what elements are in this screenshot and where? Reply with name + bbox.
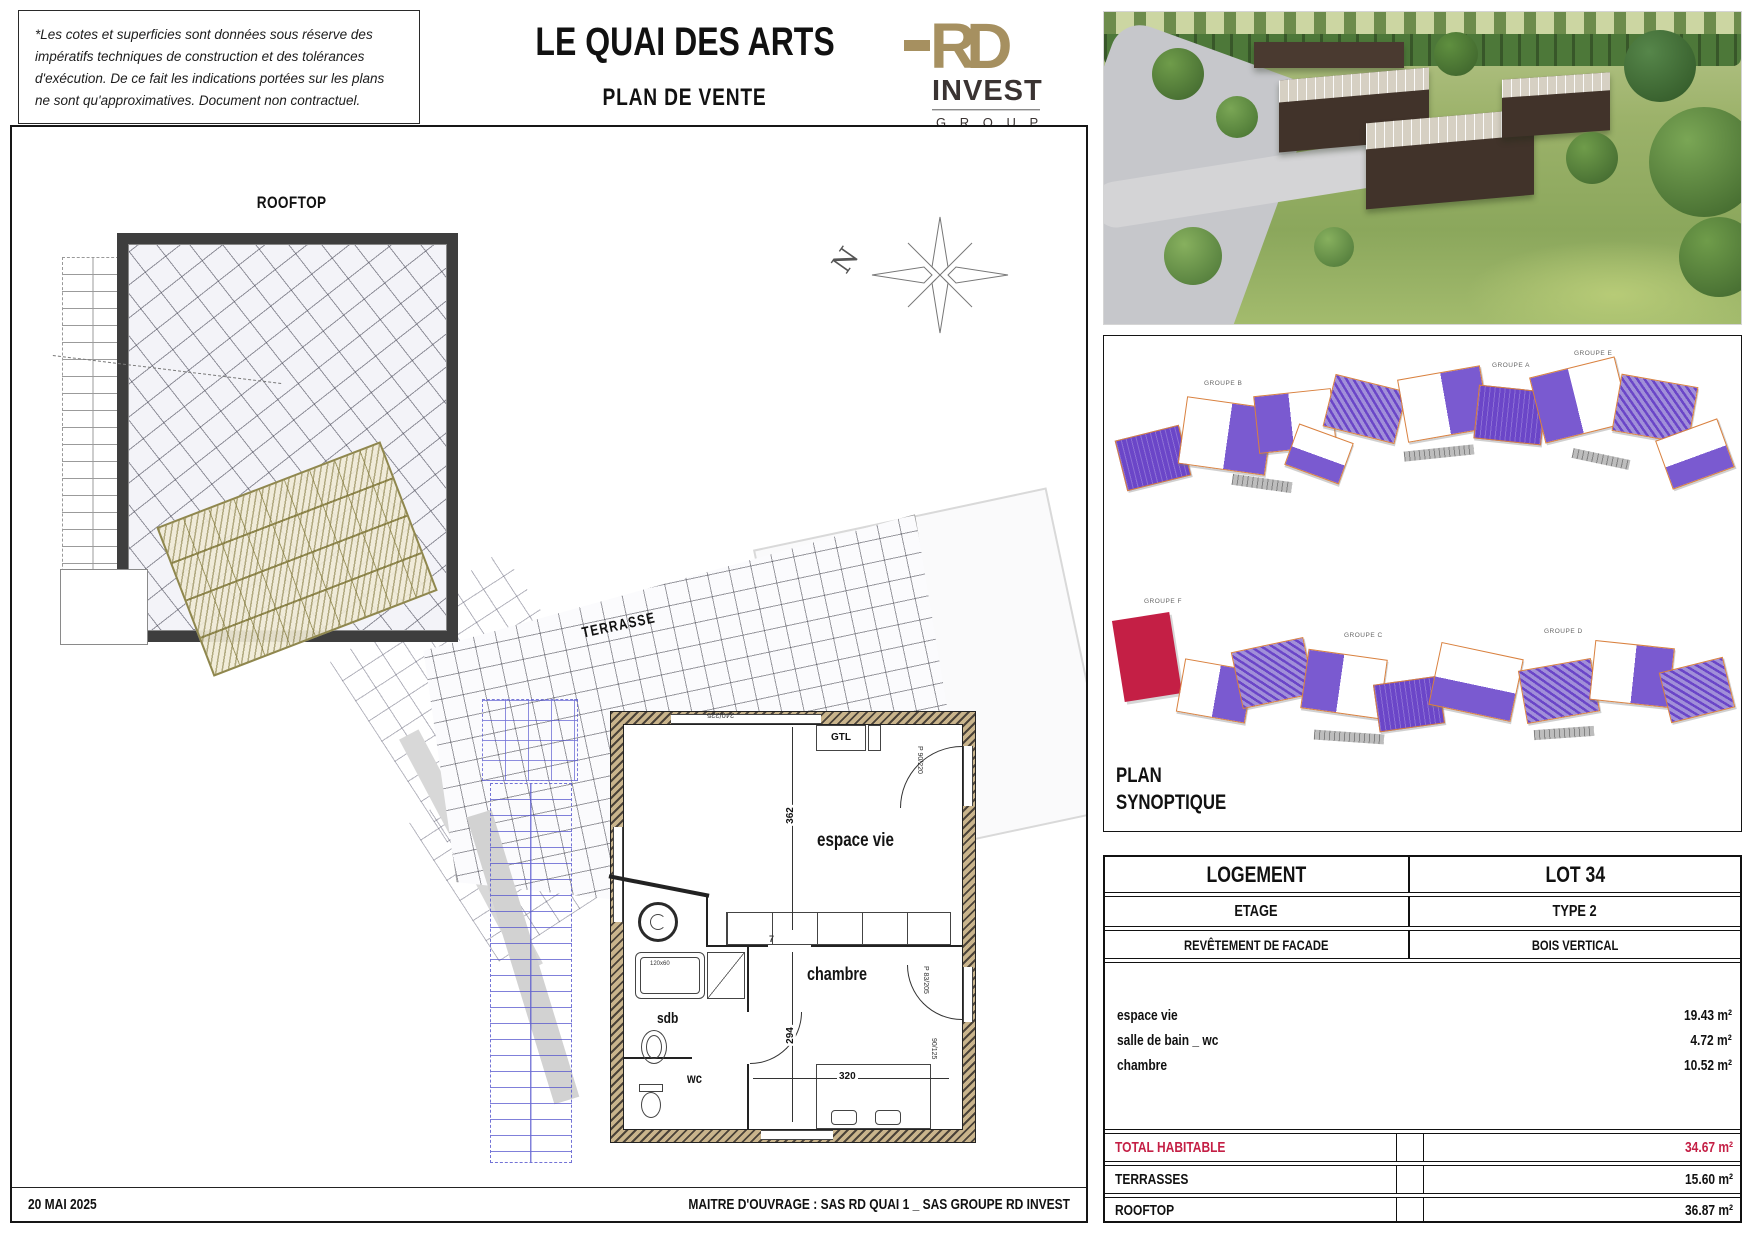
rooftop-plan-label: ROOFTOP (212, 193, 372, 213)
logo-invest-text: INVEST (932, 75, 1043, 107)
room-area: 10.52 m² (1684, 1053, 1732, 1078)
facade-header: REVÊTEMENT DE FACADE (1105, 931, 1410, 958)
tree (1624, 30, 1696, 102)
rooftop-row: ROOFTOP 36.87 m² (1105, 1198, 1740, 1223)
bed (816, 1064, 931, 1129)
north-label: N (826, 242, 865, 279)
tree (1216, 96, 1258, 138)
spacer-cell (1397, 1134, 1424, 1161)
lot-type: TYPE 2 (1410, 903, 1740, 921)
gtl-box: GTL (816, 725, 866, 751)
page-title: LE QUAI DES ARTS (420, 20, 950, 65)
table-row-logement: LOGEMENT LOT 34 (1105, 857, 1740, 892)
synoptic-shadow (1314, 730, 1385, 745)
kitchen-counter (726, 912, 951, 945)
total-habitable-label: TOTAL HABITABLE (1105, 1134, 1397, 1161)
spacer-cell (1397, 1198, 1424, 1223)
project-rendering-photo (1103, 11, 1742, 325)
rooftop-area-value: 36.87 m² (1424, 1198, 1740, 1223)
room-area-row: salle de bain _ wc 4.72 m² (1117, 1028, 1732, 1053)
room-label: salle de bain _ wc (1117, 1028, 1218, 1053)
dim-entry-door: P 90/220 (916, 746, 923, 774)
tree (1566, 132, 1618, 184)
room-area: 19.43 m² (1684, 1003, 1732, 1028)
interior-wall (706, 894, 708, 945)
rooftop-area-label: ROOFTOP (1105, 1198, 1397, 1223)
room-label: chambre (1117, 1053, 1167, 1078)
window-top (671, 714, 821, 724)
interior-wall (747, 1064, 749, 1129)
bathtub-dim: 120x60 (650, 961, 670, 967)
espace-vie-label: espace vie (817, 830, 947, 852)
dim-line-362 (792, 727, 793, 930)
rooftop-exterior-stair (62, 257, 124, 607)
group-label: GROUPE B (1204, 380, 1242, 387)
apartment-unit-plan: GTL 120x60 (611, 712, 975, 1142)
dim-seven: 7 (769, 934, 774, 944)
bathtub: 120x60 (635, 952, 705, 999)
dim-362: 362 (785, 805, 796, 826)
synoptic-plan-panel: GROUPE B GROUPE A GROUPE E GROUPE F GROU… (1103, 335, 1742, 832)
table-row-etage: ETAGE TYPE 2 (1105, 897, 1740, 926)
room-area: 4.72 m² (1691, 1028, 1732, 1053)
total-habitable-value: 34.67 m² (1424, 1134, 1740, 1161)
synoptic-shadow (1404, 444, 1475, 461)
building-back (1254, 42, 1404, 68)
window-bottom (761, 1130, 833, 1140)
rd-invest-logo: RD INVEST G R O U P (900, 6, 1050, 130)
interior-wall (811, 945, 963, 947)
highlighted-lot-34 (1112, 612, 1182, 702)
group-label: GROUPE E (1574, 350, 1612, 357)
lot-spec-table: LOGEMENT LOT 34 ETAGE TYPE 2 REVÊTEMENT … (1103, 855, 1742, 1223)
plan-de-vente-document: *Les cotes et superficies sont données s… (0, 0, 1753, 1240)
sdb-label: sdb (657, 1010, 684, 1027)
chambre-door-opening (963, 967, 973, 1022)
interior-wall (706, 945, 768, 947)
synoptic-unit-block (1518, 658, 1600, 724)
gtl-side-box (868, 725, 881, 751)
toilet (641, 1092, 661, 1118)
large-tree (1649, 107, 1742, 217)
chambre-label: chambre (807, 964, 882, 985)
rooftop-stair-landing (60, 569, 148, 645)
building-3 (1502, 72, 1610, 138)
lot-number: LOT 34 (1410, 862, 1740, 888)
group-label: GROUPE F (1144, 598, 1182, 605)
washbasin (641, 1030, 667, 1064)
room-areas-block: espace vie 19.43 m² salle de bain _ wc 4… (1105, 963, 1740, 1129)
compass-rose-icon (870, 215, 1010, 335)
logo-rd-text: RD (930, 10, 1010, 82)
shower (707, 952, 745, 999)
maitre-ouvrage: MAITRE D'OUVRAGE : SAS RD QUAI 1 _ SAS G… (688, 1196, 1070, 1213)
pillow (831, 1110, 857, 1125)
group-label: GROUPE C (1344, 632, 1383, 639)
synoptic-unit-block (1284, 423, 1354, 484)
synoptic-shadow (1572, 448, 1631, 470)
synoptic-shadow (1534, 726, 1595, 740)
disclaimer-box: *Les cotes et superficies sont données s… (18, 10, 420, 124)
tree (1164, 227, 1222, 285)
tree (1434, 32, 1478, 76)
plan-footer: 20 MAI 2025 MAITRE D'OUVRAGE : SAS RD QU… (12, 1187, 1086, 1221)
tree (1152, 48, 1204, 100)
facade-value: BOIS VERTICAL (1410, 937, 1740, 953)
logement-header: LOGEMENT (1105, 857, 1410, 892)
synoptic-title: PLAN SYNOPTIQUE (1116, 762, 1254, 817)
room-area-row: chambre 10.52 m² (1117, 1053, 1732, 1078)
tree (1314, 227, 1354, 267)
pillow (875, 1110, 901, 1125)
disclaimer-text: *Les cotes et superficies sont données s… (35, 27, 384, 108)
room-label: espace vie (1117, 1003, 1178, 1028)
group-label: GROUPE A (1492, 362, 1530, 369)
table-row-facade: REVÊTEMENT DE FACADE BOIS VERTICAL (1105, 931, 1740, 958)
group-label: GROUPE D (1544, 628, 1583, 635)
plan-date: 20 MAI 2025 (28, 1196, 97, 1213)
main-plan-frame: ROOFTOP N TERRASSE (10, 125, 1088, 1223)
synoptic-shadow (1232, 474, 1293, 493)
stair-upper-grid (482, 699, 578, 781)
dim-top-window: 240/225 (707, 711, 734, 720)
room-area-row: espace vie 19.43 m² (1117, 1003, 1732, 1028)
terrasses-label: TERRASSES (1105, 1166, 1397, 1193)
entry-door-opening (963, 746, 973, 806)
wc-label: wc (687, 1070, 706, 1086)
exterior-staircase (490, 783, 572, 1163)
spacer-cell (1397, 1166, 1424, 1193)
total-habitable-row: TOTAL HABITABLE 34.67 m² (1105, 1134, 1740, 1161)
dim-chambre-door: P 83/205 (922, 966, 929, 994)
washing-machine-drum (650, 914, 666, 930)
page-subtitle: PLAN DE VENTE (420, 84, 950, 112)
interior-wall (747, 945, 749, 1012)
etage-header: ETAGE (1105, 897, 1410, 926)
toilet-tank (639, 1084, 663, 1092)
dim-320: 320 (837, 1071, 858, 1082)
terrasses-row: TERRASSES 15.60 m² (1105, 1166, 1740, 1193)
dim-bottom-window: 90/125 (930, 1038, 937, 1059)
terrasses-value: 15.60 m² (1424, 1166, 1740, 1193)
dim-294: 294 (785, 1025, 796, 1046)
